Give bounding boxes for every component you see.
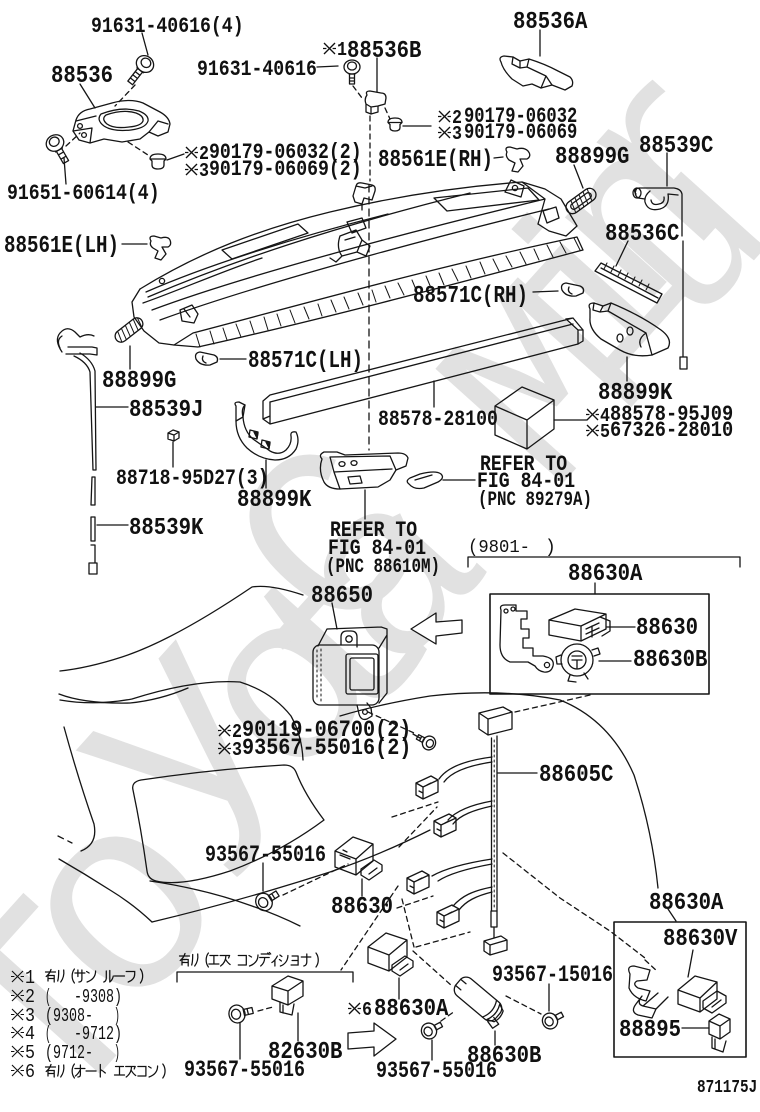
svg-text:88605C: 88605C (539, 762, 613, 789)
svg-text:(9712-: (9712- (45, 1042, 93, 1064)
svg-text:(PNC 89279A): (PNC 89279A) (478, 489, 592, 512)
svg-text:88630A: 88630A (374, 996, 449, 1023)
svg-text:): ) (545, 538, 556, 558)
svg-text:93567-15016: 93567-15016 (492, 962, 613, 988)
svg-text:88630: 88630 (636, 615, 698, 642)
svg-text:88630: 88630 (331, 894, 393, 921)
svg-text:1: 1 (337, 39, 347, 61)
svg-text:91631-40616(4): 91631-40616(4) (91, 14, 244, 39)
svg-text:): ) (114, 1042, 120, 1064)
svg-text:88899K: 88899K (237, 487, 312, 514)
svg-text:88561E(LH): 88561E(LH) (4, 233, 119, 260)
svg-text:88630A: 88630A (649, 890, 724, 917)
svg-text:93567-55016: 93567-55016 (184, 1057, 305, 1083)
svg-text:3: 3 (232, 739, 242, 761)
svg-text:88895: 88895 (619, 1017, 681, 1044)
svg-text:93567-55016: 93567-55016 (205, 842, 326, 868)
svg-text:67326-28010: 67326-28010 (610, 418, 733, 443)
svg-text:91651-60614(4): 91651-60614(4) (7, 181, 160, 206)
svg-text:88899G: 88899G (555, 144, 629, 171)
svg-text:88536: 88536 (51, 63, 113, 90)
svg-text:88630B: 88630B (633, 647, 707, 674)
svg-text:88561E(RH): 88561E(RH) (378, 147, 493, 174)
svg-text:88650: 88650 (311, 583, 373, 610)
svg-text:90179-06069(2): 90179-06069(2) (209, 157, 362, 182)
svg-text:91631-40616: 91631-40616 (197, 57, 317, 82)
svg-text:88899G: 88899G (102, 368, 176, 395)
svg-text:93567-55016(2): 93567-55016(2) (242, 735, 411, 761)
svg-text:6: 6 (25, 1061, 35, 1083)
svg-text:88536A: 88536A (513, 9, 588, 36)
svg-text:88536B: 88536B (347, 38, 421, 65)
svg-text:(9801-: (9801- (468, 538, 530, 558)
svg-text:93567-55016: 93567-55016 (376, 1058, 497, 1084)
svg-text:871175J: 871175J (697, 1078, 757, 1098)
svg-text:88571C(LH): 88571C(LH) (248, 348, 363, 375)
svg-text:6: 6 (362, 999, 372, 1021)
svg-text:88630A: 88630A (568, 561, 643, 588)
svg-text:88630V: 88630V (663, 926, 738, 953)
svg-text:88578-28100: 88578-28100 (378, 407, 498, 432)
svg-text:3: 3 (452, 123, 462, 145)
svg-text:5: 5 (600, 421, 610, 443)
svg-text:88539J: 88539J (129, 397, 203, 424)
svg-text:88536C: 88536C (605, 221, 679, 248)
svg-text:88571C(RH): 88571C(RH) (413, 283, 528, 310)
svg-text:88539K: 88539K (129, 515, 204, 542)
svg-text:88539C: 88539C (639, 133, 713, 160)
svg-text:90179-06069: 90179-06069 (464, 120, 577, 145)
svg-text:3: 3 (199, 160, 209, 182)
svg-text:(PNC 88610M): (PNC 88610M) (326, 556, 440, 579)
